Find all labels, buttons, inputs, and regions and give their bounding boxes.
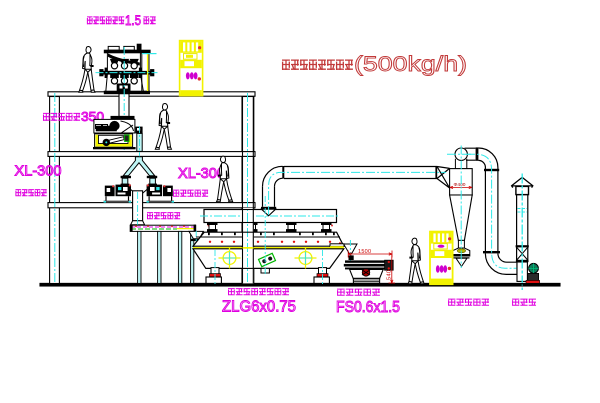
svg-text:Φ400: Φ400 [454,182,466,187]
svg-text:XL-300: XL-300 [15,163,62,180]
svg-text:1.5: 1.5 [125,13,141,28]
svg-text:FS0.6x1.5: FS0.6x1.5 [336,299,400,316]
svg-text:XL-300: XL-300 [178,165,225,182]
svg-text:540: 540 [387,270,393,280]
svg-text:ZLG6x0.75: ZLG6x0.75 [222,299,296,316]
svg-text:1500: 1500 [358,249,371,255]
svg-text:(500kg/h): (500kg/h) [354,52,467,76]
